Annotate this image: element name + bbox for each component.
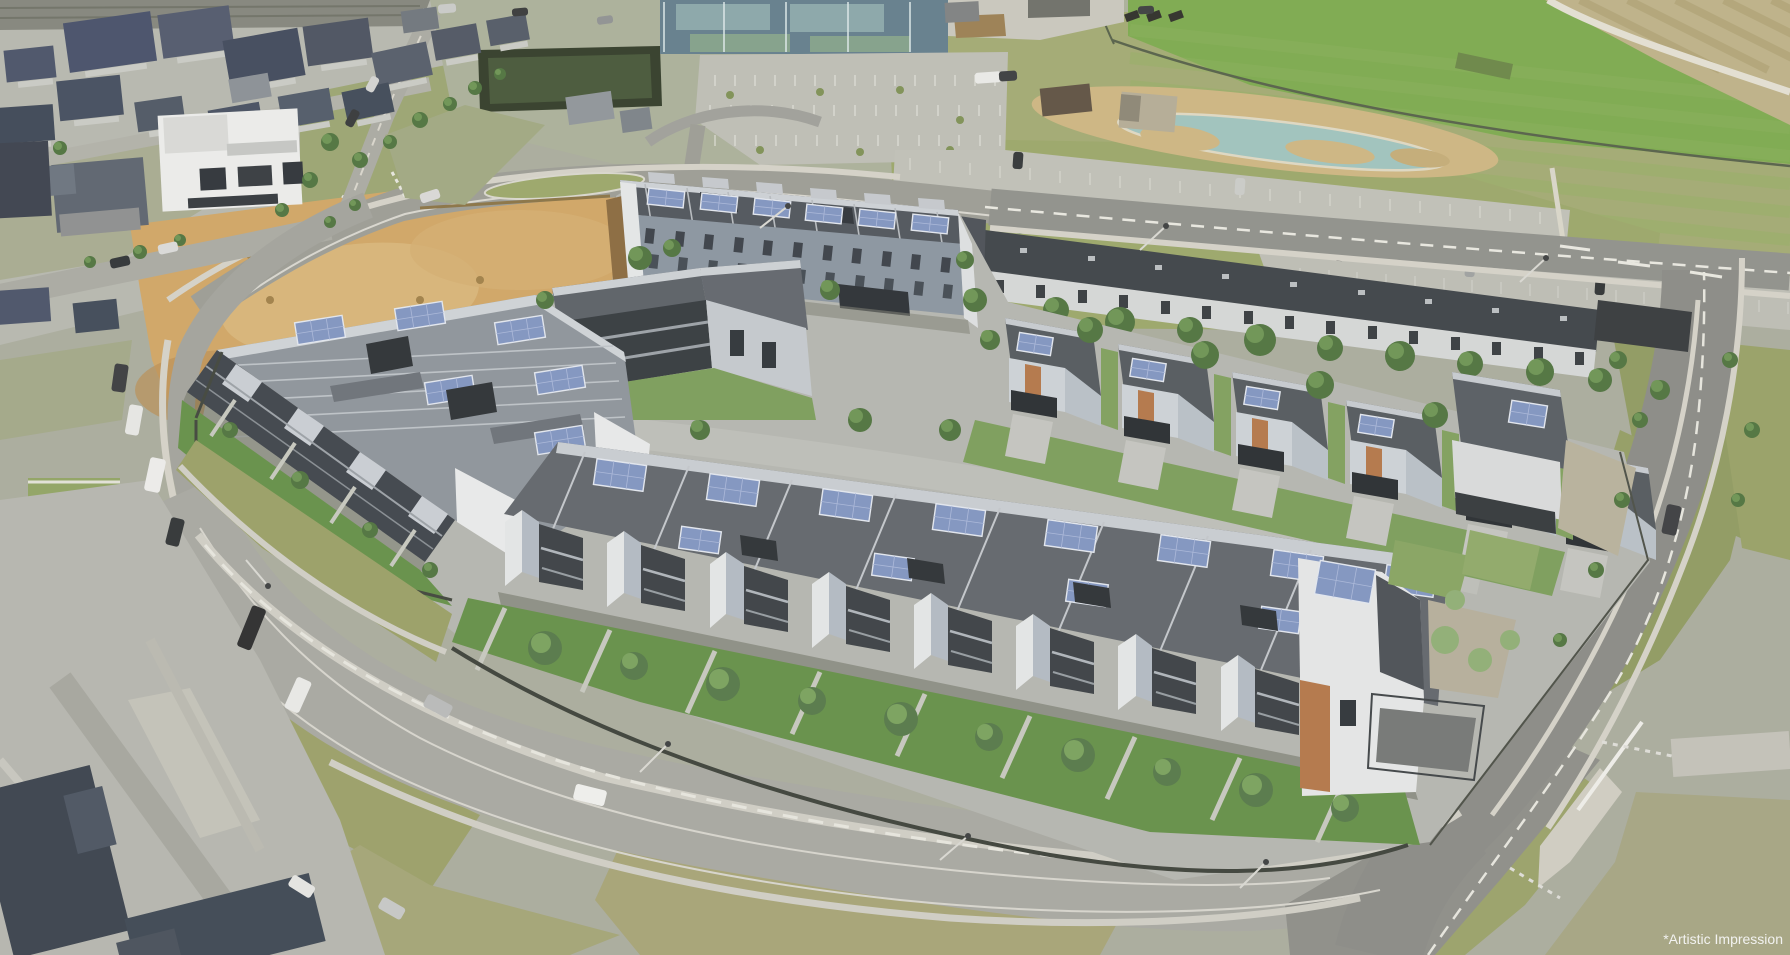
- svg-text:*Artistic Impression: *Artistic Impression: [1663, 931, 1783, 947]
